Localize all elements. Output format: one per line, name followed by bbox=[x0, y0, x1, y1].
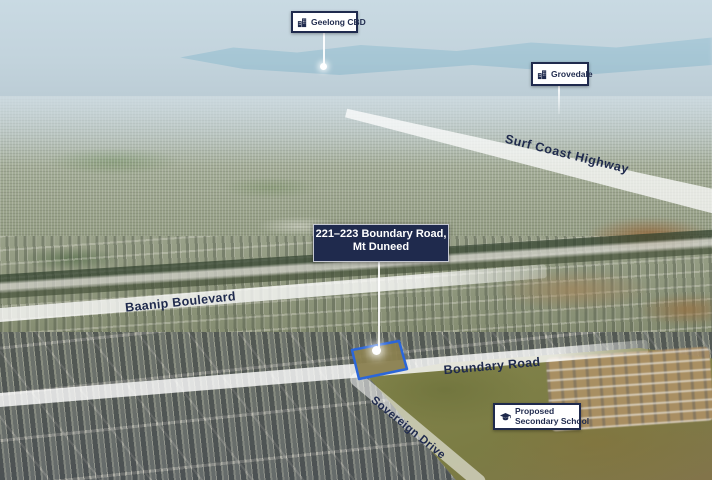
geelong-cbd-label: Geelong CBD bbox=[311, 17, 366, 27]
grovedale-label: Grovedale bbox=[551, 69, 593, 79]
grovedale-leader-line bbox=[558, 86, 560, 114]
proposed-school-line2: Secondary School bbox=[515, 417, 589, 427]
city-buildings-icon bbox=[297, 17, 308, 28]
graduation-cap-icon bbox=[499, 411, 512, 423]
city-buildings-icon bbox=[537, 69, 548, 80]
property-address-line1: 221–223 Boundary Road, bbox=[314, 228, 448, 241]
property-address-callout: 221–223 Boundary Road, Mt Duneed bbox=[313, 224, 449, 262]
geelong-cbd-leader-line bbox=[323, 33, 325, 66]
property-leader-dot bbox=[372, 346, 381, 355]
proposed-school-callout: Proposed Secondary School bbox=[493, 403, 581, 430]
property-address-line2: Mt Duneed bbox=[314, 241, 448, 254]
proposed-school-label: Proposed Secondary School bbox=[515, 407, 589, 426]
geelong-cbd-leader-dot bbox=[320, 63, 327, 70]
aerial-photo: Surf Coast Highway Baanip Boulevard Boun… bbox=[0, 0, 712, 480]
geelong-cbd-callout: Geelong CBD bbox=[291, 11, 358, 33]
property-leader-line bbox=[378, 257, 380, 348]
grovedale-callout: Grovedale bbox=[531, 62, 589, 86]
